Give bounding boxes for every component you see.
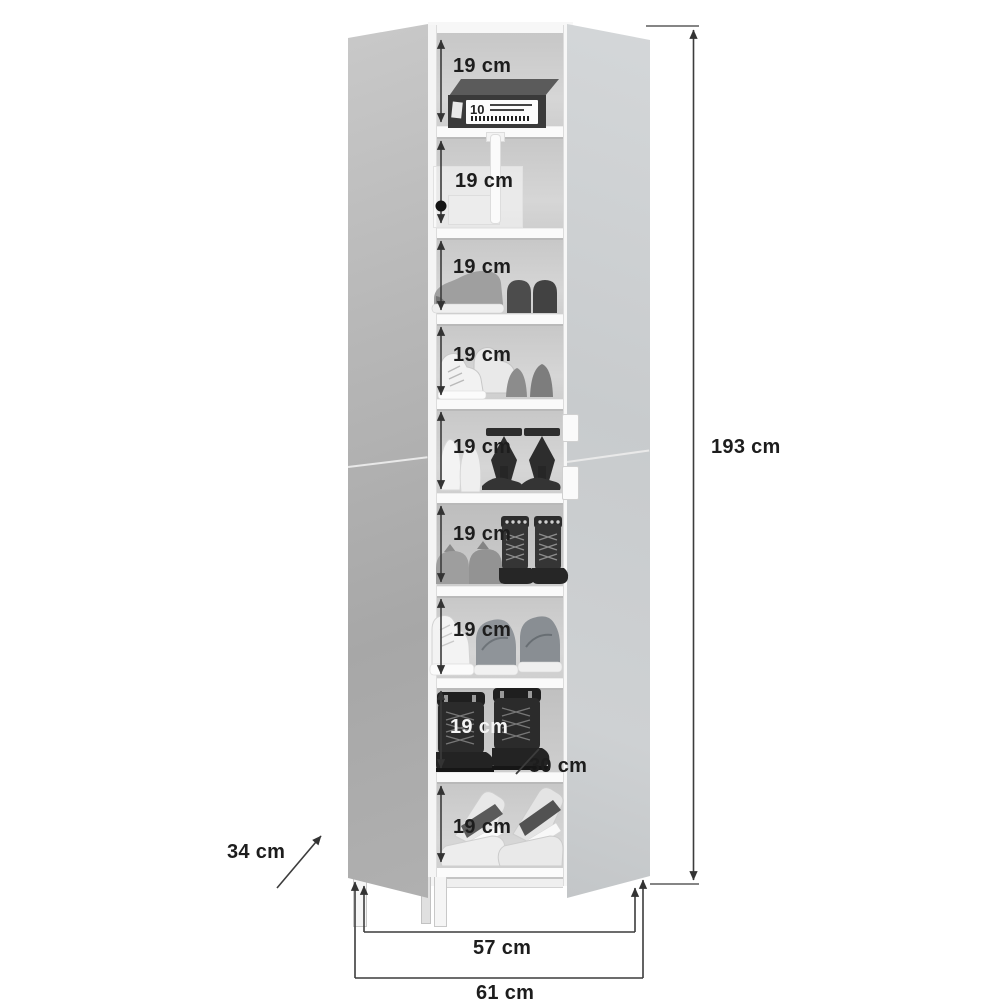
shelf-board bbox=[436, 678, 563, 690]
total-width-label: 61 cm bbox=[476, 982, 534, 1000]
hinge-bracket bbox=[562, 466, 579, 500]
cabinet-plinth bbox=[436, 879, 563, 888]
door-depth-label: 34 cm bbox=[227, 841, 285, 864]
shelf-9-height-label: 19 cm bbox=[453, 816, 511, 839]
shelf-5-height-label: 19 cm bbox=[453, 436, 511, 459]
label-text-line bbox=[490, 109, 524, 111]
shelf-board bbox=[436, 314, 563, 326]
cabinet-foot bbox=[434, 877, 447, 927]
shelf-board bbox=[436, 493, 563, 505]
label-text-line bbox=[490, 104, 532, 106]
shoe-box-size-number: 10 bbox=[470, 102, 484, 117]
cabinet-foot bbox=[353, 877, 367, 927]
label-barcode bbox=[471, 116, 529, 121]
shelf-board bbox=[436, 228, 563, 240]
shoe-box-side-tag bbox=[451, 102, 463, 119]
shelf-7-height-label: 19 cm bbox=[453, 619, 511, 642]
shelf-1-height-label: 19 cm bbox=[453, 55, 511, 78]
total-height-label: 193 cm bbox=[711, 436, 781, 459]
shelf-board bbox=[436, 399, 563, 411]
shoe-box-label: 10 bbox=[466, 100, 538, 124]
shelf-6-height-label: 19 cm bbox=[453, 523, 511, 546]
shelf-3-height-label: 19 cm bbox=[453, 256, 511, 279]
shelf-2-height-label: 19 cm bbox=[455, 170, 513, 193]
shelf-board bbox=[436, 586, 563, 598]
hinge-bracket bbox=[562, 414, 579, 442]
shoe-cabinet-dimension-diagram: 10 bbox=[0, 0, 1000, 1000]
shelf-depth-label: 30 cm bbox=[529, 755, 587, 778]
total-width-dimension-line bbox=[355, 880, 643, 978]
inner-width-label: 57 cm bbox=[473, 937, 531, 960]
cabinet-left-wall bbox=[428, 25, 437, 886]
height-dimension-line bbox=[646, 26, 699, 884]
cabinet-bottom-board bbox=[436, 868, 563, 879]
shelf-8-height-label: 19 cm bbox=[450, 716, 508, 739]
shoe-box-lid bbox=[448, 79, 559, 96]
shelf-4-height-label: 19 cm bbox=[453, 344, 511, 367]
inner-width-dimension-line bbox=[364, 886, 635, 932]
